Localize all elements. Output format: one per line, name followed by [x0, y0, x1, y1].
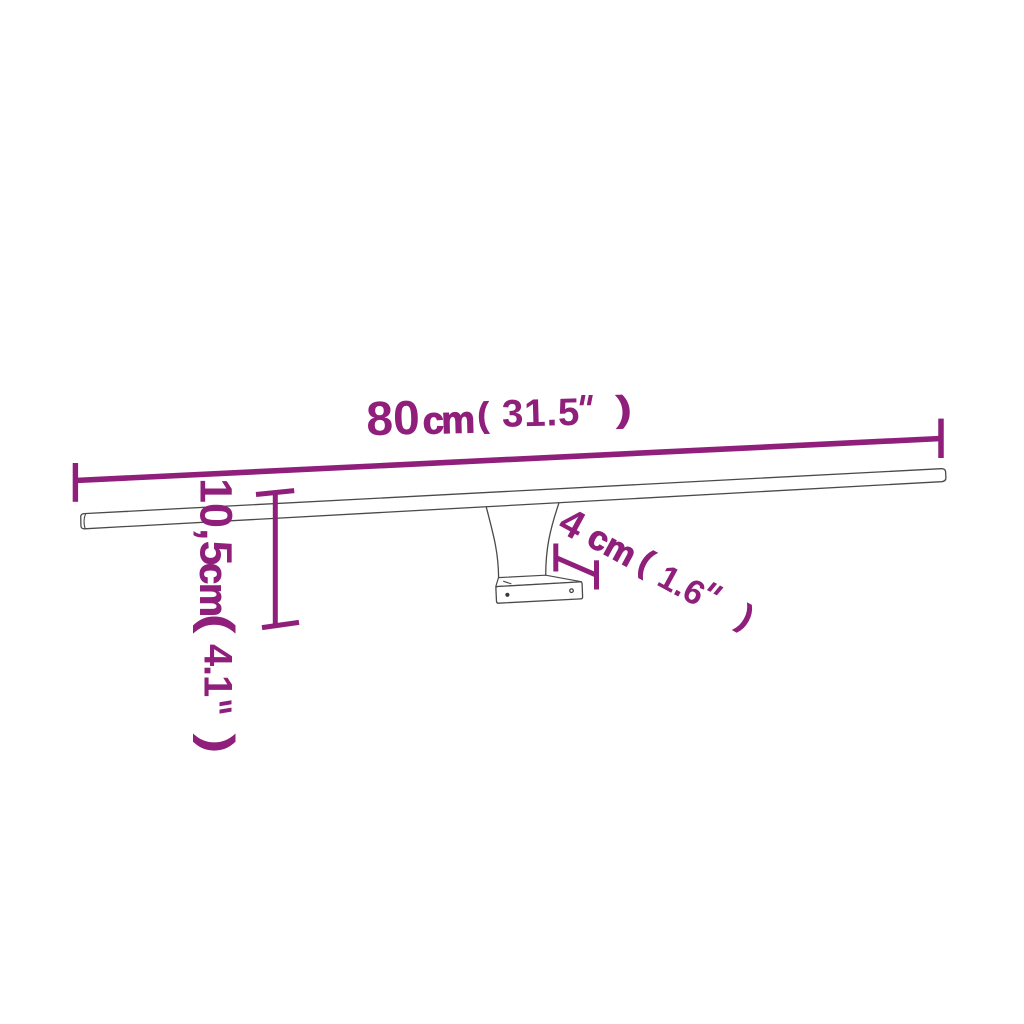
- svg-text:cm: cm: [422, 399, 474, 442]
- svg-text:80: 80: [366, 392, 421, 446]
- svg-text:cm: cm: [191, 563, 233, 616]
- svg-text:(: (: [192, 614, 242, 634]
- svg-text:10,5: 10,5: [190, 478, 241, 566]
- svg-text:): ): [615, 388, 632, 429]
- svg-text:): ): [192, 733, 242, 753]
- svg-text:(: (: [477, 396, 490, 434]
- svg-text:4.1: 4.1: [195, 644, 239, 697]
- svg-text:31.5: 31.5: [501, 391, 580, 436]
